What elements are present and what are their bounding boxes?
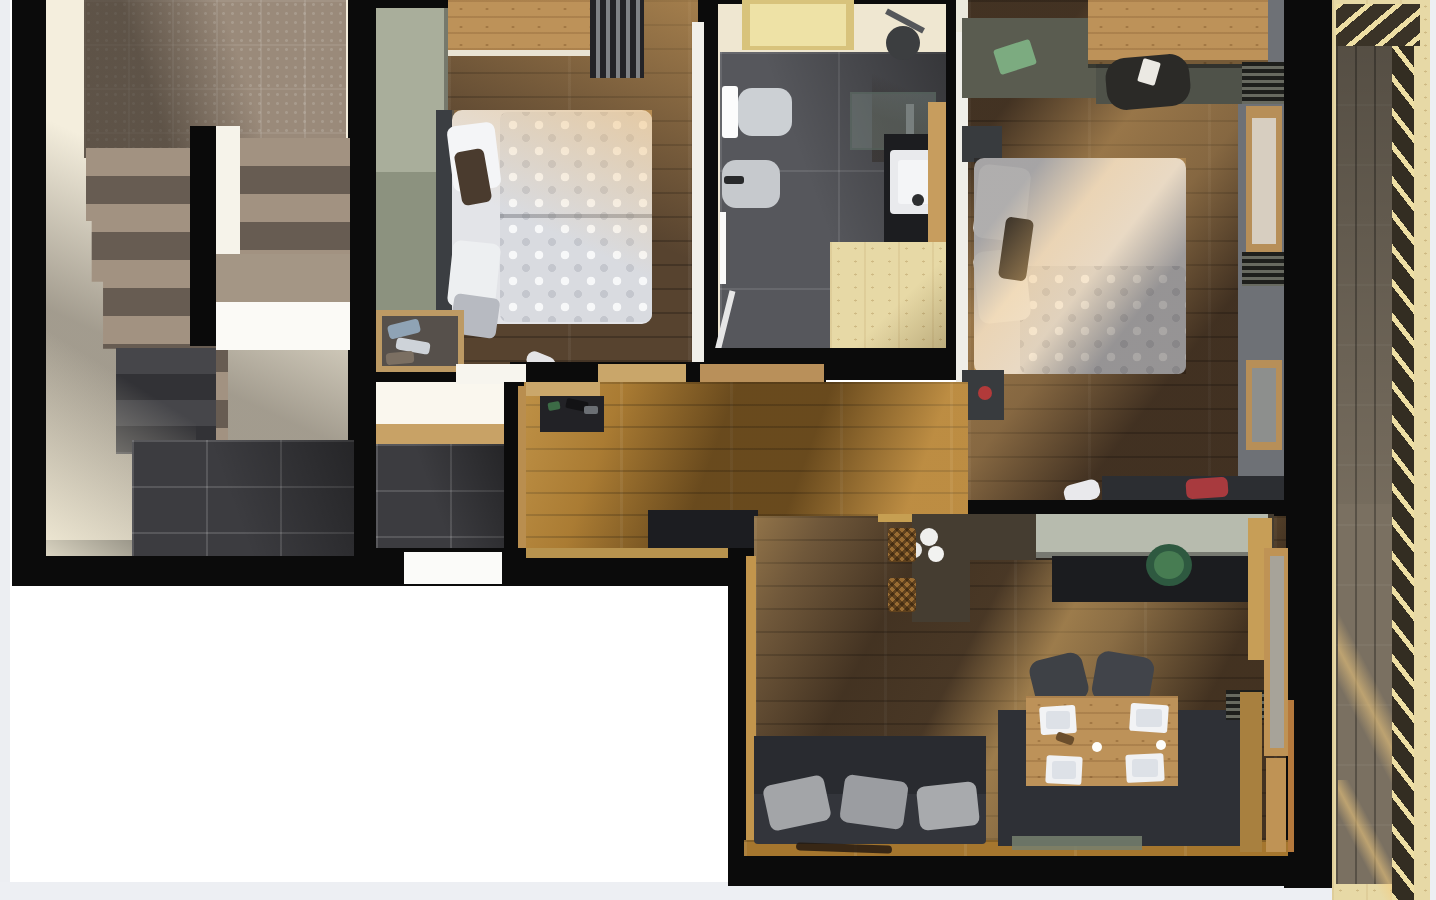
bidet-tap <box>724 176 744 184</box>
bedroom2-window2-pane <box>1252 368 1276 442</box>
bedroom1-door-sill <box>448 50 606 56</box>
plate-1 <box>1046 711 1070 729</box>
bedroom1-door-panel <box>448 0 606 54</box>
sofa-pillow-3 <box>916 781 980 831</box>
bath-faucet <box>912 194 924 206</box>
balcony-railing-top <box>1336 4 1420 46</box>
living-window-pane <box>1270 556 1284 748</box>
table-candle-2 <box>1156 740 1166 750</box>
balcony-deck-shadow <box>1336 44 1396 504</box>
living-bottom-wall <box>728 852 1336 886</box>
bedroom2-shutter-top <box>1242 62 1284 104</box>
towel-rail <box>720 212 726 284</box>
plate-3 <box>1052 761 1076 779</box>
counter-bowl-1 <box>920 528 938 546</box>
desk-wood-top <box>1088 0 1268 64</box>
hall-door-gap-bedroom1 <box>456 364 526 384</box>
kitchen-plant <box>1154 551 1184 579</box>
dining-wall-wood-strip <box>1240 692 1262 852</box>
balcony-railing-slats <box>1392 22 1414 900</box>
dresser-red-bag <box>1185 477 1228 500</box>
hall-divider-wood <box>518 386 526 550</box>
page-margin-left <box>0 0 10 900</box>
kitchen-stool-2 <box>888 578 916 612</box>
living-wall-wood-sliver <box>1288 700 1294 852</box>
bedroom1-wall-right <box>692 22 704 364</box>
balcony-sun-streak-1 <box>1338 600 1394 800</box>
kitchen-stool-1 <box>888 528 916 562</box>
bedroom2-window-pane <box>1252 118 1276 244</box>
hall-door-gap-bath <box>700 364 824 384</box>
living-right-wall-top <box>1284 0 1336 500</box>
bed2-light <box>974 158 1186 374</box>
counter-bowl-3 <box>928 546 944 562</box>
bed2-red-item <box>978 386 992 400</box>
stair-void <box>216 302 350 350</box>
entry-door-gap <box>404 552 502 584</box>
table-candle-1 <box>1092 742 1102 752</box>
toilet-tank <box>722 86 738 138</box>
bedroom2-shutter-mid <box>1242 252 1284 286</box>
hall-bench <box>648 510 758 548</box>
bed2-nightstand-top <box>962 126 1002 162</box>
hall-door-threshold <box>598 364 686 384</box>
console-box <box>584 406 598 414</box>
dining-rug <box>1012 836 1142 850</box>
kitchen-peninsula <box>912 514 970 622</box>
plate-4 <box>1132 759 1158 777</box>
bedroom1-radiator-slats <box>590 0 644 78</box>
toilet-bowl <box>738 88 792 136</box>
hall-wall-edge <box>526 382 600 396</box>
balcony-sun-streak-2 <box>1338 780 1394 900</box>
stairwell-tile-shadow <box>132 440 354 556</box>
floorplan-render <box>0 0 1436 900</box>
luggage-clothes-3 <box>386 351 415 365</box>
plate-2 <box>1136 709 1162 727</box>
bidet <box>722 160 780 208</box>
bath-window-pane <box>750 4 846 46</box>
hall-bottom-wood-edge <box>526 548 746 558</box>
living-window2-frame <box>1266 758 1286 852</box>
shower-head <box>886 26 920 60</box>
entry-lit-wall <box>376 382 504 430</box>
entry-threshold <box>376 424 504 446</box>
sofa-pillow-2 <box>839 774 909 830</box>
entry-tile-shadow <box>376 444 504 548</box>
bath-bench-shadow <box>830 242 948 360</box>
stair-landing-step <box>216 254 350 304</box>
